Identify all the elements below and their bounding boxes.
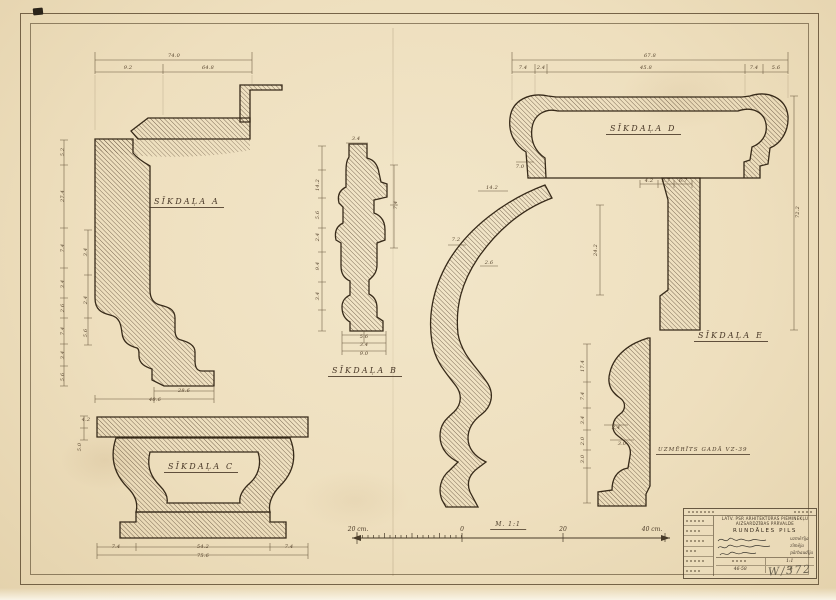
detail-d-cap xyxy=(510,94,788,178)
dim-label: 5.6 xyxy=(315,211,321,220)
dim-label: 3.4 xyxy=(352,136,361,142)
dim-label: 5.6 xyxy=(60,373,66,382)
dim-label: 17.4 xyxy=(580,360,586,372)
dim-label: 7.4 xyxy=(112,544,121,550)
scale-right-label: 40 cm. xyxy=(642,526,663,533)
dim-label: 7.4 xyxy=(393,201,399,210)
signature-roles: uzmērīja zīmēja pārbaudīja xyxy=(790,536,813,555)
scan-edge xyxy=(0,588,836,600)
detail-a-stem xyxy=(95,139,214,386)
detail-a-cap xyxy=(240,85,282,122)
dim-label: 75.6 xyxy=(197,553,209,559)
detail-c-cushion xyxy=(113,438,294,512)
dim-label: 74.0 xyxy=(168,53,180,59)
signature-3 xyxy=(720,552,756,555)
illegible-text-smudge xyxy=(732,560,748,562)
dim-label: 7.4 xyxy=(519,65,528,71)
detail-b-drawing xyxy=(335,144,387,331)
scale-bar-minor-ticks xyxy=(357,533,462,538)
illegible-text-smudge xyxy=(686,540,704,542)
detail-d-drawing xyxy=(431,94,789,507)
dim-label: 67.8 xyxy=(644,53,656,59)
dim-label: 5.6 xyxy=(83,329,89,338)
dim-label: 24.2 xyxy=(593,244,599,256)
dim-label: 3.4 xyxy=(580,416,586,425)
survey-note: UZMĒRĪTS GADĀ VZ-39 xyxy=(656,447,750,455)
dim-label: 27.4 xyxy=(60,190,66,202)
dim-label: 2.0 xyxy=(580,437,586,446)
dim-label: 64.8 xyxy=(202,65,214,71)
dim-label: 14.2 xyxy=(486,185,498,191)
illegible-text-smudge xyxy=(686,530,700,532)
doc-number-cell: 46-58 xyxy=(716,566,766,573)
title-block-top-row xyxy=(684,509,816,516)
dim-label: 4.2 xyxy=(645,178,654,184)
dim-label: 7.4 xyxy=(60,327,66,336)
detail-c-top-band xyxy=(97,417,308,437)
dim-label: 7.4 xyxy=(750,65,759,71)
dim-label: 2.7 xyxy=(662,178,671,184)
scale-bar xyxy=(352,532,670,544)
role-label: zīmēja xyxy=(790,543,813,548)
organization-line-2: AIZSARDZĪBAS PĀRVALDE xyxy=(716,522,814,527)
scale-zero-label: 0 xyxy=(460,526,464,533)
title-block-label-column xyxy=(684,516,714,576)
illegible-text-smudge xyxy=(686,520,706,522)
dim-label: 2.6 xyxy=(60,304,66,313)
detail-d-column xyxy=(660,178,700,330)
signature-2 xyxy=(718,545,770,548)
dim-label: 9.2 xyxy=(124,65,133,71)
detail-c-drawing xyxy=(97,417,308,538)
dim-label: 72.2 xyxy=(795,206,801,218)
scale-left-label: 20 cm. xyxy=(348,526,369,533)
detail-a-drawing xyxy=(95,85,282,386)
dim-label: 7.2 xyxy=(452,237,461,243)
dim-label: 9.4 xyxy=(315,262,321,271)
detail-d-label: SĪKDAĻA D xyxy=(606,124,681,135)
dim-label: 5.6 xyxy=(360,334,369,340)
dim-label: 9.0 xyxy=(360,351,369,357)
dim-label: 3.4 xyxy=(83,248,89,257)
dim-label: 14.2 xyxy=(315,179,321,191)
dim-label: 2.4 xyxy=(83,296,89,305)
detail-c-plinth xyxy=(120,512,286,538)
detail-e-label: SĪKDAĻA E xyxy=(694,331,768,342)
dim-label: 3.4 xyxy=(360,342,369,348)
illegible-text-smudge xyxy=(794,511,812,513)
drawing-sheet: SĪKDAĻA A SĪKDAĻA B SĪKDAĻA C SĪKDAĻA D … xyxy=(0,0,836,600)
dim-label: 2.6 xyxy=(485,260,494,266)
illegible-text-smudge xyxy=(688,511,714,513)
dim-label: 3.0 xyxy=(580,455,586,464)
dim-label: 28.6 xyxy=(178,388,190,394)
detail-b-label: SĪKDAĻA B xyxy=(328,366,402,377)
role-label: pārbaudīja xyxy=(790,550,813,555)
illegible-text-smudge xyxy=(686,560,705,562)
dim-label: 3.4 xyxy=(60,280,66,289)
dim-label: 40.6 xyxy=(149,397,161,403)
dim-label: 5.6 xyxy=(772,65,781,71)
scale-mid-label: 20 xyxy=(559,526,567,533)
dim-label: 2.4 xyxy=(537,65,546,71)
dim-label: 5.2 xyxy=(60,148,66,157)
dim-label: 2.4 xyxy=(315,233,321,242)
detail-c-label: SĪKDAĻA C xyxy=(164,462,238,473)
dim-label: 3.4 xyxy=(315,292,321,301)
dim-label: 7.4 xyxy=(60,244,66,253)
detail-a-crown xyxy=(131,118,250,139)
dim-label: 7.4 xyxy=(580,392,586,401)
illegible-text-smudge xyxy=(686,550,698,552)
detail-b-profile xyxy=(335,144,387,331)
detail-a-label: SĪKDAĻA A xyxy=(150,197,224,208)
dim-label: 4.2 xyxy=(82,417,91,423)
dim-label: 5.0 xyxy=(77,443,83,452)
signatures xyxy=(716,535,788,557)
detail-d-ogee xyxy=(431,185,552,507)
dim-label: 7.4 xyxy=(285,544,294,550)
dim-label: 2.4 xyxy=(612,425,621,431)
detail-e-profile xyxy=(598,338,650,506)
object-name: RUNDĀLES PILS xyxy=(716,528,814,534)
dim-label: 45.8 xyxy=(640,65,652,71)
scale-caption: M. 1:1 xyxy=(490,521,526,530)
signature-1 xyxy=(718,538,766,541)
signatures-zone: uzmērīja zīmēja pārbaudīja xyxy=(716,535,814,557)
dim-label: 3.4 xyxy=(60,351,66,360)
dim-label: 54.2 xyxy=(197,544,209,550)
illegible-text-smudge xyxy=(686,570,701,572)
dim-label: 7.0 xyxy=(516,164,525,170)
dim-label: 3.0 xyxy=(618,441,627,447)
detail-e-drawing xyxy=(598,338,650,506)
dim-label: 6.7 xyxy=(679,178,688,184)
role-label: uzmērīja xyxy=(790,536,813,541)
